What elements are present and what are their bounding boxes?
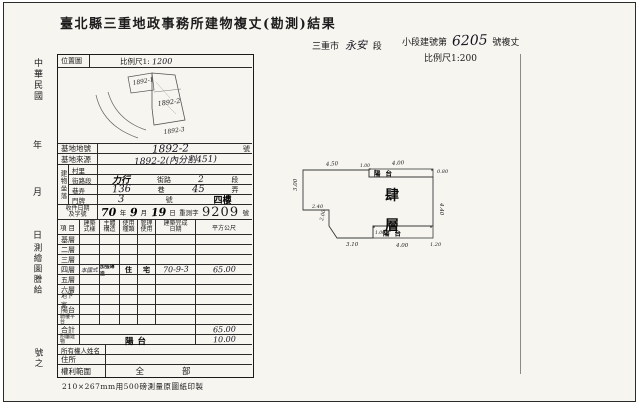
receipt-day-value: 19 xyxy=(150,205,166,219)
owner-address-row: 住所 xyxy=(58,355,252,365)
receipt-number: 9209 xyxy=(202,205,239,220)
plan-scale: 比例尺1:200 xyxy=(424,51,477,64)
street-unit: 街路 xyxy=(157,175,171,185)
receipt-word: 重測字 xyxy=(179,207,199,217)
page-title: 臺北縣三重地政事務所建物複丈(勘測)結果 xyxy=(60,13,336,32)
receipt-label: 收件日期 及字號 xyxy=(58,205,98,219)
receipt-year-value: 70 xyxy=(101,205,117,219)
building-suffix: 號複丈 xyxy=(492,38,519,48)
building-number-handwritten: 6205 xyxy=(452,32,488,49)
receipt-row: 收件日期 及字號 70 年 9 月 19 日 重測字 9209 號 xyxy=(58,205,252,220)
receipt-month-value: 9 xyxy=(129,205,137,218)
floor-row-2: 二層 xyxy=(58,245,252,255)
footer-note: 210×267mm用500磅測量原圖紙印製 xyxy=(62,381,203,392)
building-number-line: 小段建號第 6205 號複丈 xyxy=(402,33,519,49)
margin-era: 中華民國 xyxy=(31,58,44,102)
floor4-style-value: 本國式 xyxy=(81,265,98,274)
floor-row-label: 陽台 xyxy=(58,305,80,314)
header-manage: 管理 使用 xyxy=(138,220,156,234)
margin-month: 月 xyxy=(33,185,42,198)
door-number-value: 3 xyxy=(118,194,125,205)
floor-plan-drawing: 肆 層 陽台 陽台 4.50 4.00 1.00 0.80 4.40 3.00 … xyxy=(290,148,460,263)
lot-origin-row: 基地來源 1892-2(內分割451) xyxy=(58,154,252,165)
annex-area-value: 10.00 xyxy=(212,335,235,345)
section-unit: 段 xyxy=(231,175,238,185)
parcel-label-1892-3: 1892-3 xyxy=(163,126,185,136)
floor-row-label: 騎樓平台 xyxy=(58,315,80,324)
lane-row-label: 巷弄 xyxy=(69,185,98,194)
dim-right-edge: 4.40 xyxy=(438,202,444,216)
location-map-header: 位置圖 比例尺1: 1200 xyxy=(58,55,252,68)
header-date: 建築完成 日期 xyxy=(156,220,196,234)
survey-point xyxy=(430,226,432,228)
receipt-label-line2: 及字號 xyxy=(68,212,86,219)
floor4-manage-value: 宅 xyxy=(143,265,150,275)
dim-balcony-left-small: 1.00 xyxy=(360,163,370,169)
margin-year: 年 xyxy=(33,138,42,151)
floor-row-label: 五層 xyxy=(58,275,80,284)
balcony-bottom-stamp: 陽台 xyxy=(383,229,406,238)
floor-row-label: 四層 xyxy=(58,265,80,274)
floor-row-label: 基層 xyxy=(58,235,80,244)
street-row-label: 街路段 xyxy=(69,175,98,184)
floor4-use-value: 住 xyxy=(125,265,132,275)
dim-top-left: 4.50 xyxy=(325,161,339,168)
floor-row-basement: 地下室 xyxy=(58,295,252,305)
survey-point xyxy=(431,169,433,171)
rights-value: 全部 xyxy=(129,367,228,377)
parcel-inner-line xyxy=(154,89,181,92)
floor-row-label: 地下室 xyxy=(58,295,80,304)
total-row: 合計 65.00 xyxy=(58,325,252,335)
sheet-divider xyxy=(520,54,521,374)
rights-label: 權利範圍 xyxy=(58,365,106,377)
lot-number-label: 基地地號 xyxy=(58,144,98,153)
dim-bottom-balcony: 4.00 xyxy=(395,243,409,249)
dim-left-edge: 3.00 xyxy=(293,178,299,191)
header-date-l2: 日期 xyxy=(169,227,181,234)
district-suffix: 段 xyxy=(373,42,382,52)
receipt-day-unit: 日 xyxy=(169,207,176,217)
receipt-month-unit: 月 xyxy=(141,207,148,217)
location-map-scale-prefix: 比例尺1: xyxy=(120,56,150,67)
district-prefix: 三重市 xyxy=(312,42,339,52)
margin-number-suffix: 號之 xyxy=(32,348,44,369)
margin-issue-label: 測繪圖謄給 xyxy=(31,243,43,296)
total-area-value: 65.00 xyxy=(212,325,235,335)
header-structure: 主體 構造 xyxy=(100,220,120,234)
survey-point xyxy=(373,226,375,228)
lot-origin-label: 基地來源 xyxy=(58,154,98,164)
village-label: 村里 xyxy=(69,165,98,174)
rights-row: 權利範圍 全部 xyxy=(58,365,252,377)
dim-notch-small: 1.00 xyxy=(375,230,385,236)
owner-address-label: 住所 xyxy=(58,355,106,364)
annex-row: 附屬建物 陽台 10.00 xyxy=(58,335,252,345)
district-name-handwritten: 永安 xyxy=(345,37,368,54)
balcony-top-stamp: 陽台 xyxy=(374,169,397,178)
floor-row-5: 五層 xyxy=(58,275,252,285)
dim-bottom-right-small: 1.20 xyxy=(430,242,442,248)
header-structure-l2: 構造 xyxy=(103,227,115,234)
annex-label: 附屬建物 xyxy=(58,335,80,344)
dim-right-top-small: 0.80 xyxy=(437,169,449,175)
district-line: 三重市 永安 段 xyxy=(312,37,382,53)
location-map-scale-value: 1200 xyxy=(152,56,173,66)
header-use-l2: 種類 xyxy=(122,227,134,234)
floor-row-label: 二層 xyxy=(58,245,80,254)
floor4-date-value: 70-9-3 xyxy=(162,265,188,275)
owner-name-label: 所有權人姓名 xyxy=(58,345,106,354)
building-prefix: 小段建號第 xyxy=(402,38,447,48)
parcel-label-1892-1: 1892-1 xyxy=(132,76,154,87)
dim-step-v: 2.00 xyxy=(319,208,328,222)
floor4-area-value: 65.00 xyxy=(212,265,235,275)
margin-day: 日 xyxy=(33,228,42,241)
header-item: 項目 xyxy=(58,220,80,234)
location-map-label: 位置圖 xyxy=(58,55,90,67)
header-style: 建築 式樣 xyxy=(80,220,100,234)
door-row-label: 門牌 xyxy=(69,195,98,204)
survey-form: 位置圖 比例尺1: 1200 1892-1 1892-2 1892-3 基地地號… xyxy=(57,54,254,378)
floor-row-6: 六層 xyxy=(58,285,252,295)
receipt-number-unit: 號 xyxy=(243,207,250,217)
parcel-label-1892-2: 1892-2 xyxy=(157,97,181,108)
floor-row-balcony: 陽台 xyxy=(58,305,252,315)
floor-row-1: 基層 xyxy=(58,235,252,245)
dim-step-h: 2.40 xyxy=(311,204,324,210)
header-style-l2: 式樣 xyxy=(83,227,95,234)
owner-name-row: 所有權人姓名 xyxy=(58,345,252,355)
total-label: 合計 xyxy=(58,325,80,334)
floor-stamp-char1: 肆 xyxy=(385,187,399,204)
door-plate-row: 門牌 3 號 四樓 xyxy=(69,195,252,205)
header-manage-l2: 使用 xyxy=(140,227,152,234)
door-unit: 號 xyxy=(166,195,173,205)
location-map-sketch: 1892-1 1892-2 1892-3 xyxy=(58,68,252,143)
dim-bottom-left: 3.10 xyxy=(346,242,359,248)
receipt-year-unit: 年 xyxy=(120,207,127,217)
floor-row-arcade: 騎樓平台 xyxy=(58,315,252,325)
floor-row-label: 三層 xyxy=(58,255,80,264)
dim-top-balcony: 4.00 xyxy=(391,160,405,167)
header-use: 使用 種類 xyxy=(120,220,138,234)
road-curve-outer xyxy=(96,95,138,138)
parcel-hatch-1 xyxy=(156,82,170,98)
floor-row-3: 三層 xyxy=(58,255,252,265)
floor-table-header: 項目 建築 式樣 主體 構造 使用 種類 管理 使用 建築完成 日期 平方公尺 xyxy=(58,220,252,235)
floor-row-4: 四層 本國式 加強磚造 住 宅 70-9-3 65.00 xyxy=(58,265,252,275)
header-area: 平方公尺 xyxy=(196,220,252,234)
building-location-group-label: 建物坐落 xyxy=(58,165,69,205)
